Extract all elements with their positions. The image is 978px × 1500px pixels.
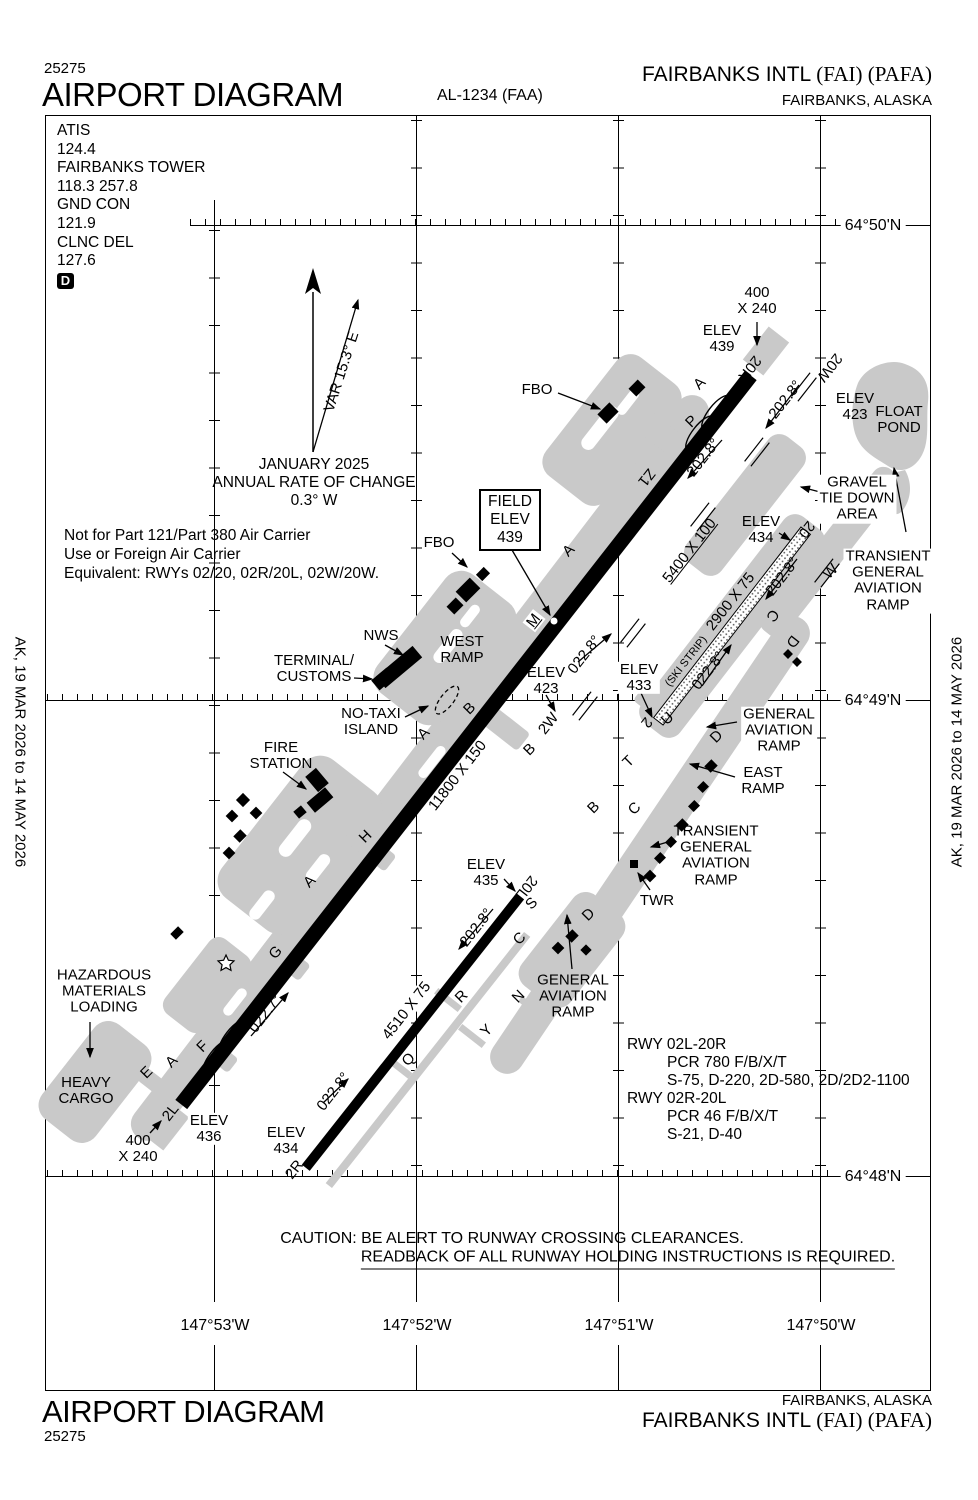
grid-lon-147-52-lower (416, 1345, 417, 1390)
caution-readback-text: READBACK OF ALL RUNWAY HOLDING INSTRUCTI… (361, 1249, 895, 1270)
comm-line-3: 118.3 257.8 (57, 178, 205, 197)
longitude-label-1: 147°52'W (378, 1317, 455, 1335)
gravel-tie-down-label: GRAVEL TIE DOWN AREA (818, 475, 897, 524)
ski-strip-elev-north: ELEV 434 (742, 514, 780, 546)
comm-frequency-lines: ATIS124.4FAIRBANKS TOWER118.3 257.8GND C… (57, 122, 205, 271)
fire-station-label: FIRE STATION (250, 740, 313, 772)
runway-data-line-3: RWY 02R-20L (627, 1090, 927, 1108)
ski-strip-elev-south: ELEV 433 (618, 662, 660, 694)
magnetic-variation-note: JANUARY 2025 ANNUAL RATE OF CHANGE 0.3° … (212, 456, 415, 510)
rwy02l-elev-mid: ELEV 423 (527, 665, 565, 697)
field-elev-line3: 439 (481, 529, 539, 547)
no-taxi-island-label: NO-TAXI ISLAND (341, 706, 401, 738)
airport-city-header: FAIRBANKS, ALASKA (782, 92, 932, 109)
grid-ticks-lat-64-48 (47, 1170, 838, 1176)
note-line-1: Use or Foreign Air Carrier (64, 546, 379, 565)
airport-codes: (FAI) (PAFA) (816, 62, 932, 86)
longitude-label-2: 147°51'W (580, 1317, 657, 1335)
runway-data-line-5: S-21, D-40 (627, 1126, 927, 1144)
effective-dates-right: AK, 19 MAR 2026 to 14 MAY 2026 (949, 637, 966, 867)
latitude-label-0: 64°50'N (841, 217, 906, 235)
comm-line-4: GND CON (57, 196, 205, 215)
grid-ticks-lat-64-50 (190, 219, 838, 225)
nws-label: NWS (364, 628, 399, 644)
comm-line-0: ATIS (57, 122, 205, 141)
rwy02l-overrun-dims: 400 X 240 (118, 1133, 157, 1165)
comm-line-1: 124.4 (57, 141, 205, 160)
page-title: AIRPORT DIAGRAM (42, 76, 343, 114)
field-elev-line1: FIELD (481, 493, 539, 511)
heavy-cargo-label: HEAVY CARGO (58, 1075, 113, 1107)
runway-data-line-1: PCR 780 F/B/X/T (627, 1054, 927, 1072)
grid-lat-64-48 (45, 1176, 930, 1177)
transient-ga-ramp-label: TRANSIENT GENERAL AVIATION RAMP (673, 824, 758, 889)
variation-date: JANUARY 2025 (212, 456, 415, 474)
comm-line-6: CLNC DEL (57, 234, 205, 253)
atis-d-symbol: D (57, 273, 74, 289)
fbo-west-label: FBO (424, 535, 455, 551)
ga-ramp-south-label: GENERAL AVIATION RAMP (537, 973, 609, 1022)
latitude-label-2: 64°48'N (841, 1168, 906, 1186)
rwy02r-elev-south: ELEV 434 (267, 1125, 305, 1157)
float-pond-elev: ELEV 423 (836, 391, 874, 423)
airport-city-footer: FAIRBANKS, ALASKA (782, 1392, 932, 1409)
hazmat-label: HAZARDOUS MATERIALS LOADING (57, 968, 151, 1017)
grid-ticks-lon-147-51 (613, 120, 624, 1175)
west-ramp-label: WEST RAMP (440, 634, 483, 666)
effective-dates-left: AK, 19 MAR 2026 to 14 MAY 2026 (12, 637, 29, 867)
chart-code-bottom: 25275 (44, 1428, 86, 1445)
airport-diagram-page: 25275 AIRPORT DIAGRAM AL-1234 (FAA) FAIR… (0, 0, 978, 1500)
fbo-north-label: FBO (522, 382, 553, 398)
ga-ramp-east-label: GENERAL AVIATION RAMP (741, 707, 817, 756)
airport-name-header: FAIRBANKS INTL (FAI) (PAFA) (642, 62, 932, 87)
comm-line-7: 127.6 (57, 252, 205, 271)
latitude-label-1: 64°49'N (841, 692, 906, 710)
airport-name-footer-text: FAIRBANKS INTL (642, 1409, 810, 1432)
restriction-notes: Not for Part 121/Part 380 Air CarrierUse… (64, 527, 379, 584)
airport-name: FAIRBANKS INTL (642, 63, 810, 86)
grid-lon-147-53-lower (214, 1345, 215, 1390)
airport-name-footer: FAIRBANKS INTL (FAI) (PAFA) (642, 1408, 932, 1433)
comm-line-2: FAIRBANKS TOWER (57, 159, 205, 178)
runway-data-line-0: RWY 02L-20R (627, 1036, 927, 1054)
field-elevation-box: FIELD ELEV 439 (479, 489, 541, 551)
east-ramp-label: EAST RAMP (741, 765, 784, 797)
rwy20l-elev: ELEV 435 (467, 857, 505, 889)
grid-lon-147-50-lower (820, 1345, 821, 1390)
comm-frequencies-box: ATIS124.4FAIRBANKS TOWER118.3 257.8GND C… (57, 122, 205, 289)
grid-lon-147-51-lower (618, 1345, 619, 1390)
variation-rate-label: ANNUAL RATE OF CHANGE (212, 474, 415, 492)
page-title-footer: AIRPORT DIAGRAM (42, 1394, 324, 1430)
comm-line-5: 121.9 (57, 215, 205, 234)
rwy02l-elev-south: ELEV 436 (188, 1113, 230, 1145)
transient-ga-ramp-ne-label: TRANSIENT GENERAL AVIATION RAMP (843, 549, 932, 614)
field-elev-line2: ELEV (481, 511, 539, 529)
float-pond-label: FLOAT POND (875, 404, 922, 436)
variation-rate-value: 0.3° W (212, 492, 415, 510)
longitude-label-0: 147°53'W (176, 1317, 253, 1335)
tower-building (630, 860, 638, 868)
longitude-label-3: 147°50'W (782, 1317, 859, 1335)
caution-text: CAUTION: BE ALERT TO RUNWAY CROSSING CLE… (280, 1230, 744, 1248)
chart-code-top: 25275 (44, 60, 86, 77)
rwy20r-overrun-dims: 400 X 240 (737, 285, 776, 317)
terminal-customs-label: TERMINAL/ CUSTOMS (274, 653, 354, 685)
runway-data-line-4: PCR 46 F/B/X/T (627, 1108, 927, 1126)
procedure-id: AL-1234 (FAA) (437, 87, 543, 105)
airport-codes-footer: (FAI) (PAFA) (816, 1408, 932, 1432)
note-line-2: Equivalent: RWYs 02/20, 02R/20L, 02W/20W… (64, 565, 379, 584)
runway-data-block: RWY 02L-20RPCR 780 F/B/X/TS-75, D-220, 2… (627, 1036, 927, 1144)
note-line-0: Not for Part 121/Part 380 Air Carrier (64, 527, 379, 546)
runway-data-line-2: S-75, D-220, 2D-580, 2D/2D2-1100 (627, 1072, 927, 1090)
twr-label: TWR (640, 893, 674, 909)
rwy20r-elev: ELEV 439 (703, 323, 741, 355)
grid-ticks-lon-147-50 (815, 120, 826, 1175)
